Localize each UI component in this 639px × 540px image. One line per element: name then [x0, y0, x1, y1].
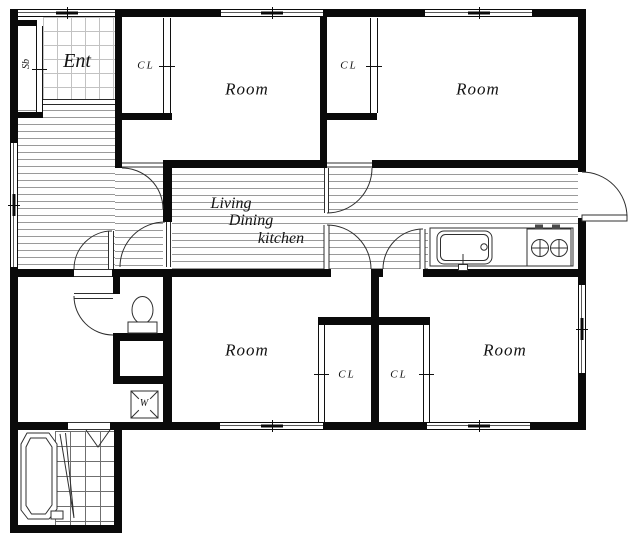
shoe-cabinet-label: Sb: [22, 59, 32, 69]
dining-label: Dining: [229, 213, 273, 229]
toilet-bowl-icon: [132, 297, 153, 324]
sink-faucet-icon: [481, 244, 487, 250]
washroom-door-arc: [74, 231, 112, 269]
kitchen-exterior-door-leaf: [582, 215, 627, 221]
kitchen-label: kitchen: [258, 231, 304, 247]
stove-knob-left: [535, 225, 543, 230]
room4-door-arc: [383, 229, 423, 269]
sink-tap: [459, 265, 468, 271]
closet-top-left-label: CL: [137, 61, 154, 72]
closet-bottom-left-label: CL: [338, 370, 355, 381]
bathroom-partition-line: [60, 433, 74, 518]
ldk-door-leaf: [167, 222, 171, 267]
bathtub-faucet: [51, 511, 63, 519]
living-label: Living: [211, 196, 252, 212]
room-bottom-left-label: Room: [225, 342, 269, 359]
stove-knob-right: [552, 225, 560, 230]
kitchen-exterior-door-arc: [582, 172, 627, 217]
room1-door-leaf: [122, 163, 163, 167]
floor-plan: Ent Sb CL CL Room Room Living Dining kit…: [0, 0, 639, 540]
toilet-door-arc: [74, 296, 113, 335]
entrance-label: Ent: [63, 51, 91, 71]
room1-door-arc: [122, 168, 163, 209]
bathroom-bifold-door: [86, 430, 110, 447]
room-top-right-label: Room: [456, 81, 500, 98]
washing-machine-label: W: [140, 399, 148, 409]
closet-bottom-right-label: CL: [390, 370, 407, 381]
room2-door-arc: [327, 168, 372, 213]
room-bottom-right-label: Room: [483, 342, 527, 359]
room3-door-arc: [327, 225, 371, 269]
room-top-left-label: Room: [225, 81, 269, 98]
closet-top-right-label: CL: [340, 61, 357, 72]
doors-and-fixtures-overlay: [0, 0, 639, 540]
room2-door-leaf: [327, 163, 372, 167]
toilet-tank-icon: [128, 322, 157, 333]
ldk-door-arc: [120, 222, 165, 267]
